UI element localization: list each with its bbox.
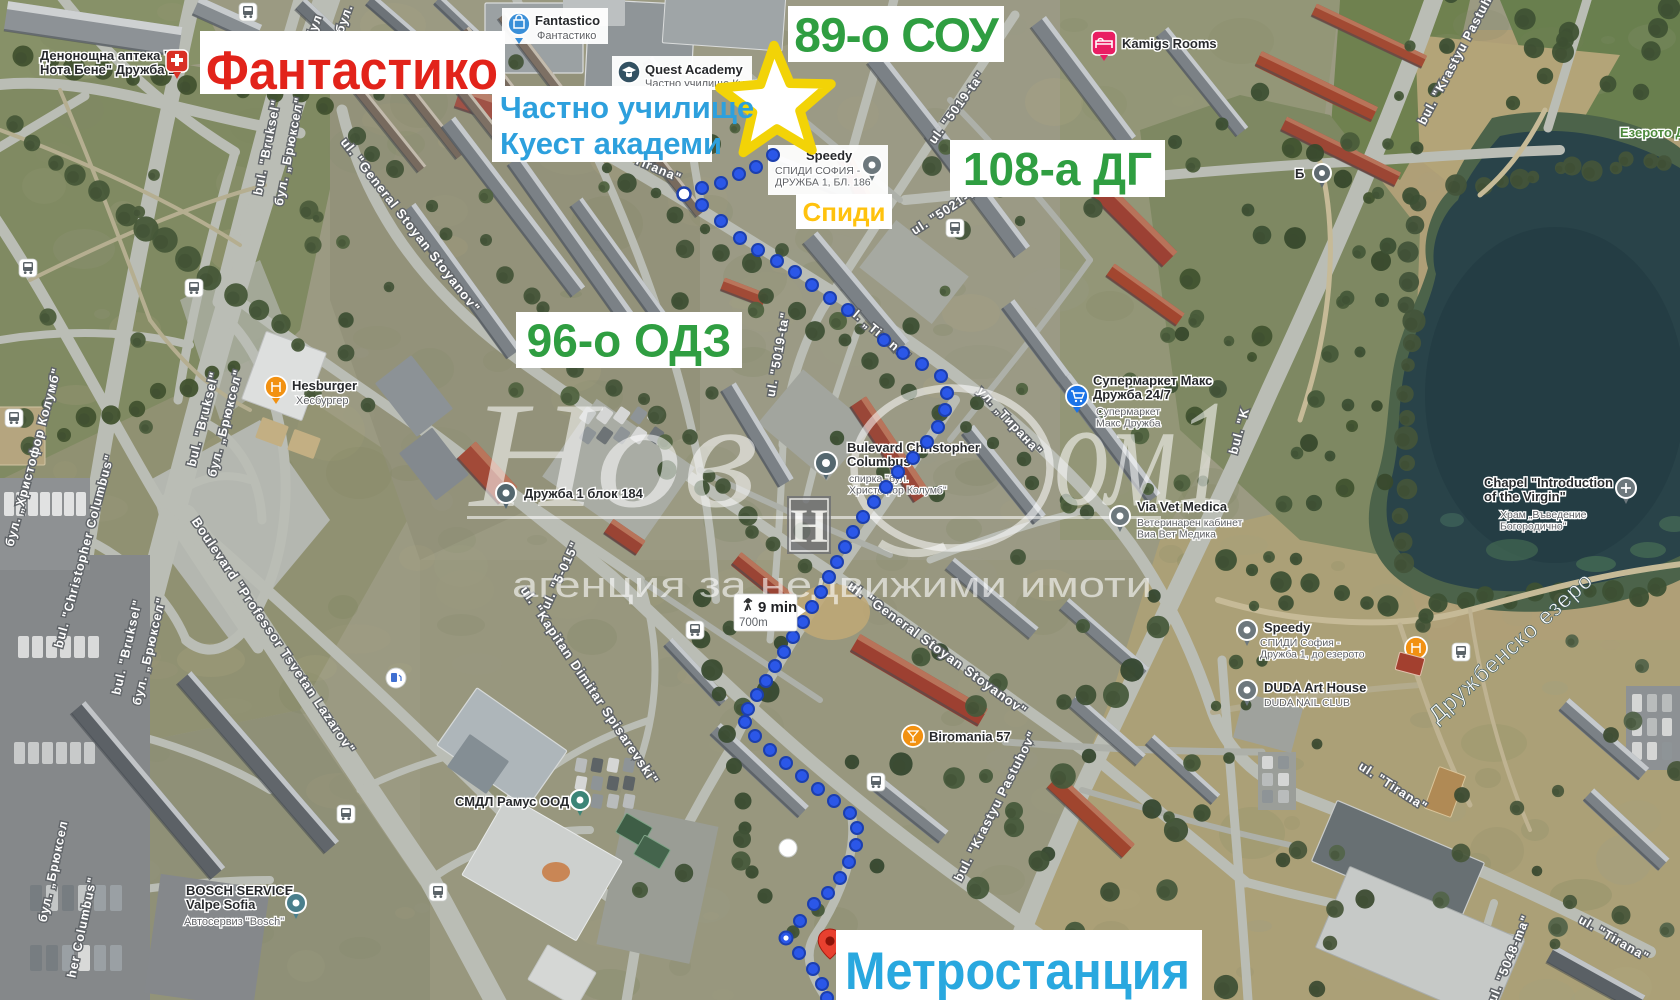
svg-text:DUDA NAIL CLUB: DUDA NAIL CLUB — [1264, 697, 1350, 709]
svg-text:Дружба 1 блок 184: Дружба 1 блок 184 — [524, 486, 644, 501]
svg-text:Biromania 57: Biromania 57 — [929, 729, 1011, 744]
svg-text:BOSCH SERVICE: BOSCH SERVICE — [186, 883, 294, 898]
svg-text:Ветеринарен кабинет: Ветеринарен кабинет — [1137, 517, 1243, 529]
svg-text:Супермаркет Макс: Супермаркет Макс — [1093, 373, 1212, 388]
svg-text:Куест академи: Куест академи — [500, 126, 722, 161]
svg-text:Макс Дружба: Макс Дружба — [1096, 418, 1161, 430]
svg-text:Виа Вет Медика: Виа Вет Медика — [1137, 529, 1216, 541]
svg-text:Via Vet Medica: Via Vet Medica — [1137, 499, 1228, 514]
svg-text:Дружба 24/7: Дружба 24/7 — [1093, 387, 1171, 402]
svg-text:Фантастико: Фантастико — [206, 39, 498, 101]
svg-text:96-о ОДЗ: 96-о ОДЗ — [527, 315, 732, 367]
svg-text:агенция за недвижими имоти: агенция за недвижими имоти — [512, 564, 1152, 605]
svg-text:СПИДИ София -: СПИДИ София - — [1260, 637, 1341, 649]
svg-text:89-о СОУ: 89-о СОУ — [794, 9, 1000, 62]
svg-text:9 min: 9 min — [758, 599, 797, 616]
svg-text:Фантастико: Фантастико — [537, 30, 596, 42]
svg-text:Chapel "Introduction: Chapel "Introduction — [1484, 475, 1613, 490]
svg-text:ДРУЖБА 1, БЛ. 186: ДРУЖБА 1, БЛ. 186 — [775, 177, 871, 189]
svg-text:Нота Бене" Дружба 1: Нота Бене" Дружба 1 — [40, 62, 175, 77]
svg-text:of the Virgin": of the Virgin" — [1484, 489, 1566, 504]
svg-text:Езерото Д: Езерото Д — [1620, 125, 1680, 140]
svg-text:Valpe Sofia: Valpe Sofia — [186, 897, 256, 912]
svg-text:Quest Academy: Quest Academy — [645, 62, 744, 77]
svg-text:Fantastico: Fantastico — [535, 13, 600, 28]
svg-text:Нов: Нов — [468, 371, 758, 539]
svg-text:Денонощна аптека ": Денонощна аптека " — [40, 48, 170, 63]
svg-text:Hesburger: Hesburger — [292, 378, 357, 393]
svg-text:700m: 700m — [739, 617, 768, 629]
svg-text:СМДЛ Рамус ООД: СМДЛ Рамус ООД — [455, 794, 570, 809]
svg-text:СПИДИ СОФИЯ -: СПИДИ СОФИЯ - — [775, 165, 861, 177]
svg-text:Speedy: Speedy — [1264, 620, 1311, 635]
svg-text:108-а ДГ: 108-а ДГ — [963, 143, 1152, 195]
svg-text:H: H — [790, 500, 827, 553]
svg-text:DUDA Art House: DUDA Art House — [1264, 680, 1366, 695]
svg-text:Хесбургер: Хесбургер — [296, 395, 349, 407]
svg-text:Храм „Въведение: Храм „Въведение — [1500, 509, 1587, 521]
svg-text:Богородично": Богородично" — [1500, 521, 1567, 533]
svg-text:Христофор Колумб": Христофор Колумб" — [849, 485, 947, 497]
svg-text:Метростанция: Метростанция — [845, 942, 1190, 1000]
svg-text:Б: Б — [1295, 166, 1304, 181]
svg-text:Частно училище: Частно училище — [500, 90, 754, 125]
svg-text:Автосервиз "Bosch": Автосервиз "Bosch" — [184, 916, 284, 928]
svg-text:Дружба 1, до езерото: Дружба 1, до езерото — [1260, 649, 1365, 661]
svg-text:Супермаркет: Супермаркет — [1096, 406, 1160, 418]
svg-text:Спиди: Спиди — [803, 197, 886, 227]
svg-text:Kamigs Rooms: Kamigs Rooms — [1122, 36, 1217, 51]
